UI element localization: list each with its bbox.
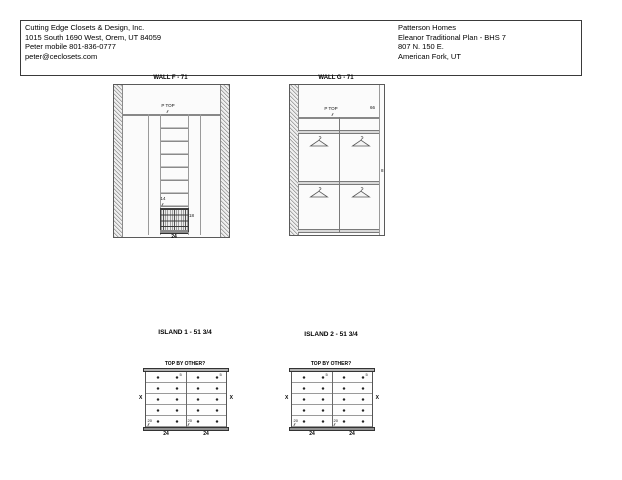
partition-line: [200, 114, 201, 235]
company-info: Cutting Edge Closets & Design, Inc. 1015…: [25, 23, 161, 61]
company-name: Cutting Edge Closets & Design, Inc.: [25, 23, 161, 33]
hanger-icon: [309, 187, 329, 198]
island-1-title: ISLAND 1 - 51 3/4: [135, 329, 235, 336]
wall-hatch-right-icon: [220, 85, 229, 237]
side-label-right: X: [376, 396, 379, 401]
wall-g-elevation: P TOP 66 8: [289, 84, 385, 236]
leader-tick: [166, 110, 168, 113]
company-email: peter@ceclosets.com: [25, 52, 161, 62]
base-bar: [289, 427, 375, 431]
column-width-dim: 24: [186, 432, 226, 437]
client-city: American Fork, UT: [398, 52, 506, 62]
wall-f-title: WALL F - 71: [113, 75, 228, 81]
shelf-tower: [161, 116, 188, 209]
column-divider-line: [332, 372, 333, 427]
hanger-icon: [309, 136, 329, 147]
wire-basket-stack: [160, 208, 189, 232]
partition-line: [148, 114, 149, 235]
client-address: 807 N. 150 E.: [398, 42, 506, 52]
top-drawer-label: 5: [366, 373, 368, 377]
hanger-icon: [351, 187, 371, 198]
client-name: Patterson Homes: [398, 23, 506, 33]
wall-g-title: WALL G - 71: [289, 75, 383, 81]
island-1-drawing: 5 5 20 20 X X 24 24: [145, 368, 227, 431]
island-2-top-note: TOP BY OTHER?: [281, 361, 381, 367]
wall-f-elevation: P TOP 14 18 24: [113, 84, 230, 238]
side-label-left: X: [285, 396, 288, 401]
base-bar: [143, 427, 229, 431]
company-phone: Peter mobile 801-836-0777: [25, 42, 161, 52]
side-label-left: X: [139, 396, 142, 401]
end-panel-line: [379, 85, 380, 235]
ptop-label: P TOP: [316, 107, 346, 112]
top-drawer-label: 5: [220, 373, 222, 377]
island-2-drawing: 5 5 20 20 X X 24 24: [291, 368, 373, 431]
tower-dim-label: 14: [161, 197, 166, 202]
client-info: Patterson Homes Eleanor Traditional Plan…: [398, 23, 506, 61]
depth-dim-label: 8: [381, 169, 384, 174]
island-2-title: ISLAND 2 - 51 3/4: [281, 331, 381, 338]
column-width-dim: 24: [146, 432, 186, 437]
column-width-dim: 24: [292, 432, 332, 437]
height-dim-label: 66: [370, 106, 375, 111]
wall-hatch-left-icon: [290, 85, 299, 235]
ptop-label: P TOP: [154, 104, 182, 109]
hanger-icon: [351, 136, 371, 147]
client-plan: Eleanor Traditional Plan - BHS 7: [398, 33, 506, 43]
center-partition-line: [339, 117, 341, 233]
island-1-top-note: TOP BY OTHER?: [135, 361, 235, 367]
closet-design-drawing-page: Cutting Edge Closets & Design, Inc. 1015…: [0, 0, 622, 480]
top-drawer-label: 5: [180, 373, 182, 377]
side-label-right: X: [230, 396, 233, 401]
company-address: 1015 South 1690 West, Orem, UT 84059: [25, 33, 161, 43]
wall-hatch-left-icon: [114, 85, 123, 237]
column-width-dim: 24: [332, 432, 372, 437]
header-box: Cutting Edge Closets & Design, Inc. 1015…: [20, 20, 582, 76]
leader-tick: [331, 113, 333, 116]
column-divider-line: [186, 372, 187, 427]
basket-height-label: 18: [189, 214, 194, 219]
tower-width-dim: 24: [160, 235, 188, 240]
top-drawer-label: 5: [326, 373, 328, 377]
